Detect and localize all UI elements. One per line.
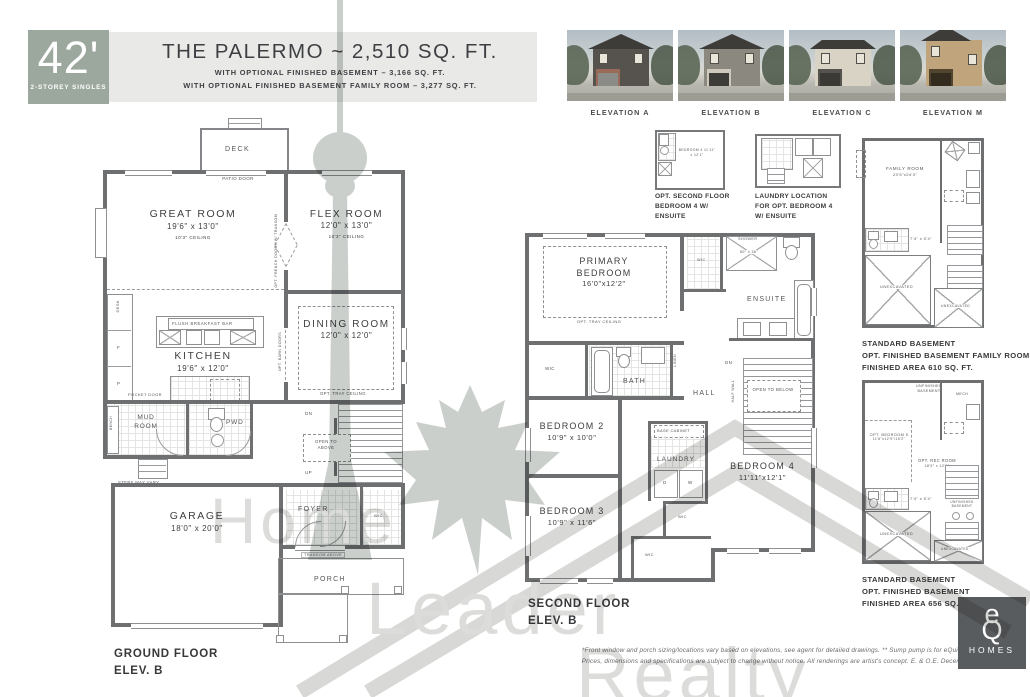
great-room: GREAT ROOM 19'6" x 13'0" 10'3" CEILING [128, 208, 258, 241]
flex-room: FLEX ROOM 12'0" x 13'0" 10'3" CEILING [294, 208, 399, 240]
base-cabinet-label: BASE CABINET [657, 428, 690, 433]
primary-window [605, 233, 645, 239]
ensuite-label: ENSUITE [747, 296, 786, 303]
fridge-label: F [117, 345, 120, 350]
bench-label: BENCH [109, 416, 113, 430]
shower-dims-label: 60" x 36" [739, 250, 759, 254]
ground-floor-caption: GROUND FLOOR ELEV. B [114, 646, 218, 679]
bedroom2-window [525, 428, 531, 462]
flex-room-window [322, 170, 372, 176]
porch-lower [278, 593, 348, 643]
disclaimer-line2: Prices, dimensions and specifications ar… [520, 656, 1030, 667]
open-to-above-label: OPEN TO ABOVE [306, 439, 346, 451]
unfinished-small-label: UNFINISHED BASEMENT [944, 500, 980, 509]
bedroom4-label: BEDROOM 4 [715, 461, 810, 473]
bench [107, 406, 119, 454]
subtitle-family-room: WITH OPTIONAL FINISHED BASEMENT FAMILY R… [130, 81, 530, 90]
garage-label: GARAGE [138, 510, 256, 524]
second-floor-caption: SECOND FLOOR ELEV. B [528, 596, 630, 629]
elevation-b: ELEVATION B [678, 30, 784, 117]
flex-room-label: FLEX ROOM [294, 208, 399, 221]
pantry-label: P [117, 381, 120, 386]
dining-window [401, 362, 407, 384]
patio-door-label: PATIO DOOR [210, 176, 266, 181]
b2-stairs-lower [945, 522, 979, 540]
opt-barn-doors-label: OPT. BARN DOORS [278, 332, 282, 371]
elevation-a-photo [567, 30, 673, 101]
powder-sink [211, 434, 224, 447]
furnace [944, 141, 965, 162]
opt-rec-room-label: OPT. REC ROOM [914, 458, 960, 464]
lot-width: 42' [28, 34, 109, 81]
great-room-window [125, 170, 172, 176]
foyer-label: FOYER [298, 506, 329, 513]
garage-door-opening [131, 623, 263, 629]
shower-label: SHOWER [737, 237, 759, 241]
family-room: FAMILY ROOM 23'5"x24'3" [872, 166, 938, 177]
garage: GARAGE 18'0" x 20'0" [138, 510, 256, 534]
second-floor-plan: BEDROOM 4 11'11" x 12'1" OPT. SECOND FLO… [515, 128, 850, 633]
mech-label: MECH [956, 392, 968, 396]
open-to-below-box [747, 380, 801, 412]
great-room-label: GREAT ROOM [128, 208, 258, 222]
dining-tray-label: OPT. TRAY CEILING [320, 391, 366, 396]
elevation-c-label: ELEVATION C [789, 108, 895, 117]
primary-wic-label: WIC [545, 366, 555, 371]
fireplace-bump [95, 208, 107, 258]
primary-window [543, 233, 587, 239]
elevation-a-label: ELEVATION A [567, 108, 673, 117]
elevation-c: ELEVATION C [789, 30, 895, 117]
sump [966, 512, 974, 520]
unexcavated-1 [865, 255, 931, 325]
b1-stairs-upper [947, 225, 983, 255]
hwt [966, 170, 980, 188]
sump [952, 512, 960, 520]
unexcavated-2 [934, 288, 983, 328]
bedroom4-wic-label: WIC [678, 514, 687, 519]
hall-label: HALL [693, 390, 716, 397]
bedroom3-window [540, 578, 578, 584]
deck-label: DECK [225, 146, 250, 153]
bedroom3-label: BEDROOM 3 [527, 506, 617, 518]
ensuite-wic-label: WIC [697, 258, 706, 262]
elevation-a: ELEVATION A [567, 30, 673, 117]
b2-closet-dims: 7'4" x 5'4" [910, 496, 932, 501]
lot-width-badge: 42' 2-STOREY SINGLES [28, 30, 109, 104]
laundry-label: LAUNDRY [657, 456, 695, 463]
elevation-b-photo [678, 30, 784, 101]
inset1-caption: OPT. SECOND FLOOR BEDROOM 4 W/ ENSUITE [655, 192, 730, 222]
primary-tray-label: OPT. TRAY CEILING [577, 319, 621, 324]
up-label: UP [305, 470, 312, 475]
entry-steps [138, 459, 168, 479]
elevation-m-label: ELEVATION M [900, 108, 1006, 117]
unexcavated-1 [865, 511, 931, 561]
bedroom4: BEDROOM 4 11'11"x12'1" [715, 461, 810, 482]
bedroom4-window [727, 548, 759, 554]
desk-label: DESK [115, 300, 120, 313]
basement1-caption: STANDARD BASEMENT OPT. FINISHED BASEMENT… [862, 338, 1030, 373]
sf-dn-label: DN [725, 360, 732, 365]
bath-sink [641, 347, 665, 364]
porch-label: PORCH [314, 576, 346, 583]
bedroom4-wic2-label: WIC [645, 552, 654, 557]
basement2-caption: STANDARD BASEMENT OPT. FINISHED BASEMENT… [862, 574, 973, 609]
bedroom3-window [587, 578, 613, 584]
linen-label: LINEN [673, 354, 677, 367]
elevation-c-photo [789, 30, 895, 101]
toilet [210, 417, 223, 432]
ensuite-toilet [785, 245, 798, 260]
bedroom3-window [525, 516, 531, 556]
subtitle-basement: WITH OPTIONAL FINISHED BASEMENT – 3,166 … [130, 68, 530, 77]
bath-toilet [618, 354, 630, 368]
hwt [966, 404, 980, 420]
dining-room-label: DINING ROOM [294, 318, 399, 331]
builder-logo: e Q HOMES [958, 597, 1026, 669]
opt-bedroom5: OPT. BEDROOM 5 11'6"x12'9"/15'2" [866, 432, 912, 442]
open-to-below-label: OPEN TO BELOW [752, 387, 794, 393]
b2-stairs-upper [945, 465, 979, 499]
bedroom4-window [811, 428, 817, 468]
bedroom3: BEDROOM 3 10'9" x 11'6" [527, 506, 617, 527]
inset2-caption: LAUNDRY LOCATION FOR OPT. BEDROOM 4 W/ E… [755, 192, 833, 222]
basement-family-room-plan: FAMILY ROOM 23'5"x24'3" 7'4" x 5'4" UNEX… [852, 130, 1030, 376]
logo-q: Q [958, 619, 1026, 641]
floorplan-flyer: 42' 2-STOREY SINGLES THE PALERMO ~ 2,510… [0, 0, 1030, 697]
pocket-door-label: POCKET DOOR [128, 392, 162, 397]
dining-room: DINING ROOM 12'0" x 12'0" [294, 318, 399, 341]
logo-homes: HOMES [958, 645, 1026, 655]
b1-stairs-lower [947, 265, 983, 289]
page-title: THE PALERMO ~ 2,510 SQ. FT. [130, 40, 530, 64]
half-wall-label: HALF WALL [731, 380, 735, 402]
b1-closet-dims: 7'4" x 5'4" [910, 236, 932, 241]
sink [159, 330, 181, 345]
primary-bedroom: PRIMARY BEDROOM 16'0"x12'2" [545, 256, 663, 289]
elevation-m: ELEVATION M [900, 30, 1006, 117]
ground-floor-plan: DECK PATIO DOOR OPT. FRENCH DOORS W/ TRA… [98, 118, 420, 683]
bedroom4-window [769, 548, 801, 554]
elevation-b-label: ELEVATION B [678, 108, 784, 117]
dining-window [401, 328, 407, 350]
opt-french-doors-label: OPT. FRENCH DOORS W/ TRANSOM [274, 214, 278, 288]
cooktop [230, 330, 256, 345]
kitchen: KITCHEN 19'6" x 12'0" [138, 350, 268, 374]
elevation-m-photo [900, 30, 1006, 101]
flush-breakfast-bar-label: FLUSH BREAKFAST BAR [172, 321, 233, 326]
bedroom2-label: BEDROOM 2 [527, 421, 617, 433]
bedroom2: BEDROOM 2 10'9" x 10'0" [527, 421, 617, 442]
primary-bedroom-label: PRIMARY [545, 256, 663, 268]
bath-label: BATH [623, 378, 646, 385]
opt-barn-doors-opening [285, 330, 286, 380]
disclaimer-line1: *Front window and porch sizing/locations… [520, 645, 1030, 656]
badge-subtitle: 2-STOREY SINGLES [28, 84, 109, 91]
kitchen-label: KITCHEN [138, 350, 268, 364]
foyer-wic-label: WIC [374, 513, 383, 518]
ensuite-window [811, 288, 817, 316]
unexcavated-2 [934, 540, 983, 562]
pwd-label: PWD [226, 419, 244, 426]
dn-label: DN [305, 411, 312, 416]
inset1-room-label: BEDROOM 4 11'11" x 12'1" [678, 148, 716, 157]
disclaimer: *Front window and porch sizing/locations… [520, 645, 1030, 667]
